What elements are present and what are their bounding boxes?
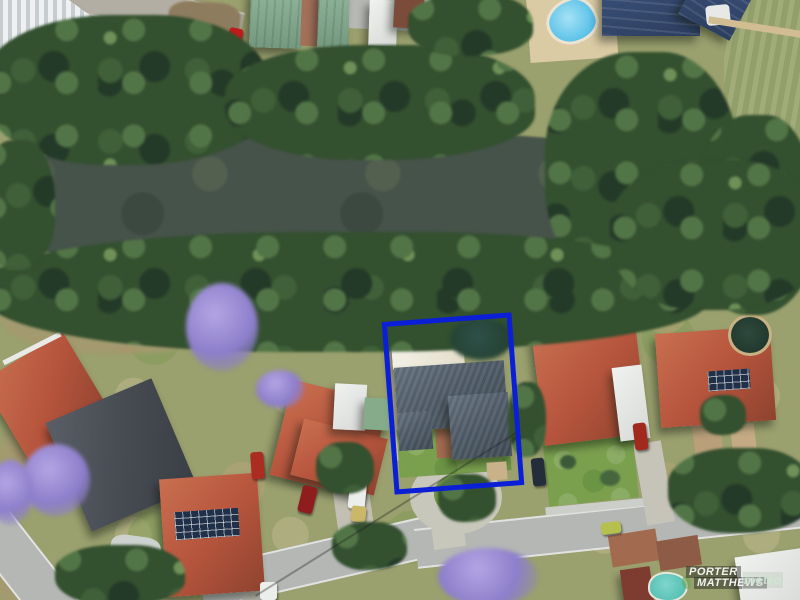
watermark: PORTER MATTHEWS metro — [680, 558, 800, 600]
watermark-brand: metro — [742, 571, 784, 589]
tree-mass-mid-right — [610, 160, 800, 310]
red-car-left — [250, 452, 265, 480]
tree-blob-top — [408, 0, 533, 56]
green-roof-wing — [317, 0, 350, 49]
far-right-solar-array — [707, 369, 750, 392]
solar-panel-array — [174, 508, 240, 540]
jacaranda-tree-street — [438, 548, 538, 600]
jacaranda-tree-small — [256, 370, 304, 408]
subject-property-boundary — [382, 312, 525, 494]
right-house-lawn — [543, 435, 639, 506]
tree-between-houses — [316, 442, 374, 494]
trees-bottom-left — [55, 545, 185, 600]
red-car-center — [297, 485, 318, 515]
jacaranda-tree-main — [186, 283, 258, 371]
brick-driveway-1 — [608, 528, 660, 567]
aerial-map: PORTER MATTHEWS metro — [0, 0, 800, 600]
garden-shrub-1 — [560, 455, 576, 469]
tree-band-south-bank — [0, 232, 705, 352]
white-garage-center — [333, 383, 367, 431]
trees-bottom-right — [668, 448, 800, 533]
jacaranda-tree-left — [22, 444, 90, 516]
tree-band-top-center — [225, 45, 535, 160]
dark-blue-car — [531, 457, 547, 486]
tree-street-row — [332, 522, 407, 570]
trailer — [350, 505, 367, 522]
garden-shrub-2 — [600, 470, 620, 486]
garden-pond — [728, 314, 772, 356]
tree-bank-left — [0, 140, 55, 270]
green-roof-house — [249, 0, 303, 49]
shrubs-far-right — [700, 395, 746, 435]
